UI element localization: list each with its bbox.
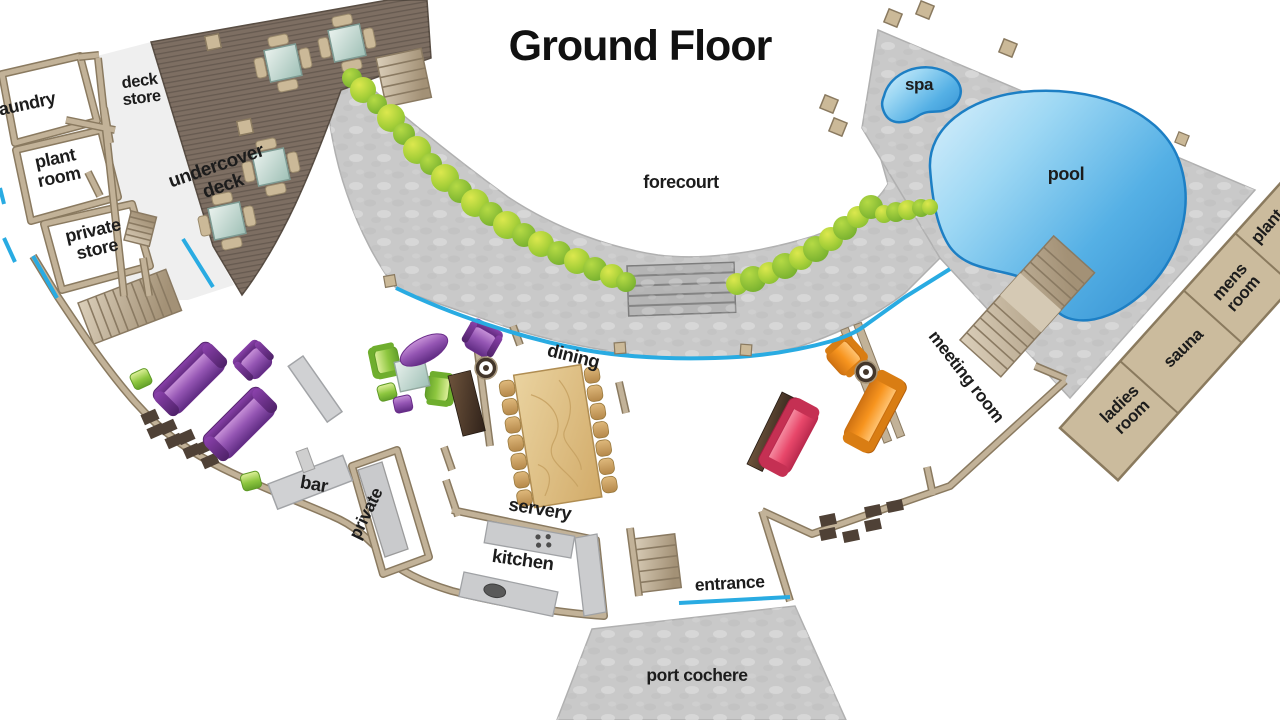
label-spa: spa — [905, 75, 934, 94]
purple-armchair — [230, 337, 277, 384]
window — [0, 188, 4, 204]
entrance-glass-door — [679, 597, 790, 603]
label-port-cochere: port cochere — [646, 665, 748, 685]
fireplace-icon — [475, 357, 497, 379]
label-pool: pool — [1048, 164, 1084, 184]
label-forecourt: forecourt — [643, 172, 719, 192]
sink-counter — [459, 572, 558, 616]
forecourt-steps — [627, 262, 736, 316]
orange-sofa — [840, 367, 909, 456]
purple-ottoman — [393, 394, 414, 413]
purple-sofa — [150, 339, 231, 420]
dining-table — [498, 362, 619, 510]
ground-floor-plan: Ground Floor laundry deck store plant ro… — [0, 0, 1280, 720]
lounge-counter — [288, 356, 342, 422]
page-title: Ground Floor — [509, 22, 773, 70]
window — [4, 238, 15, 262]
fireplace-icon — [855, 361, 877, 383]
label-entrance: entrance — [694, 571, 765, 595]
port-cochere-paving — [557, 606, 846, 720]
purple-sofa — [200, 384, 281, 465]
floor-plan-page: Ground Floor laundry deck store plant ro… — [0, 0, 1280, 720]
green-ottoman — [129, 367, 153, 390]
pillar — [296, 448, 315, 473]
kitchen-side-counter — [575, 534, 606, 616]
